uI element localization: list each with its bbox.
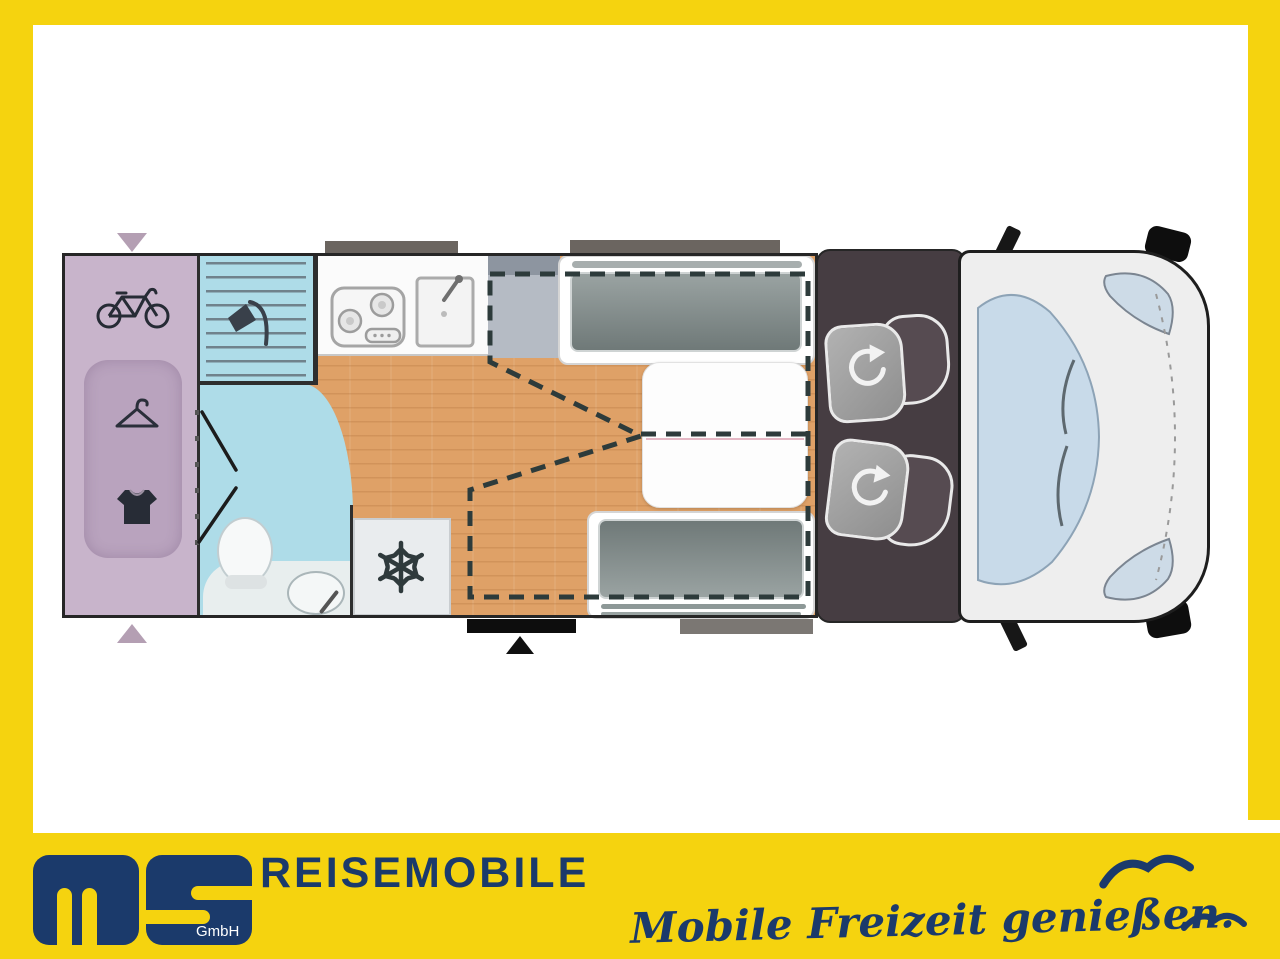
logo-slot (82, 888, 97, 945)
stove-icon (329, 285, 407, 349)
entry-door-marker (467, 619, 576, 633)
bench-cushion-bottom (598, 519, 804, 599)
garage-arrow-top-icon (117, 233, 147, 252)
snowflake-icon (374, 540, 428, 594)
hanger-icon (113, 398, 161, 430)
frame-top (0, 0, 1280, 25)
company-wordmark: REISEMOBILE (260, 849, 589, 898)
tall-cabinet-top (488, 253, 560, 275)
swivel-seat-2 (822, 437, 962, 556)
bicycle-icon (95, 282, 171, 330)
shower-wall-bottom (200, 381, 318, 385)
rotate-arrow-icon (836, 340, 892, 396)
door-hinge-dots (195, 410, 199, 550)
tshirt-icon (116, 488, 158, 526)
window-marker-bottom (680, 619, 813, 634)
shower-head-icon (220, 288, 276, 352)
rotate-arrow-icon (838, 458, 896, 516)
bench-rail-bottom-2 (601, 612, 801, 616)
bench-rail-top (572, 261, 802, 268)
window-marker-dinette (570, 240, 780, 254)
windshield (978, 295, 1099, 584)
logo-gmbh-label: GmbH (196, 923, 239, 940)
garage-arrow-bottom-icon (117, 624, 147, 643)
frame-right (1248, 0, 1280, 820)
hood-line (1156, 294, 1175, 580)
logo-slot (146, 910, 210, 924)
listing-image: GmbH REISEMOBILE Mobile Freizeit genieße… (0, 0, 1280, 959)
dinette-table (642, 362, 808, 508)
logo-slot (57, 888, 72, 945)
toilet-base (225, 575, 267, 589)
washroom-wall-right (350, 505, 353, 617)
wardrobe (84, 360, 182, 558)
cab-floor (816, 249, 966, 623)
logo-slot (191, 886, 252, 900)
bird-icon-small (1180, 906, 1248, 936)
ms-logo-m (33, 855, 139, 945)
vehicle-front-graphics (958, 250, 1210, 623)
entry-arrow-icon (506, 636, 534, 654)
swivel-seat-1 (823, 308, 958, 421)
bench-rail-bottom (601, 604, 806, 609)
frame-left (0, 0, 33, 833)
vehicle-front-body (958, 250, 1210, 623)
headlight-bottom (1104, 539, 1173, 600)
sink-icon (414, 272, 476, 350)
shower-wall-right (313, 253, 318, 385)
headlight-top (1104, 273, 1173, 334)
bench-cushion-top (570, 272, 802, 352)
